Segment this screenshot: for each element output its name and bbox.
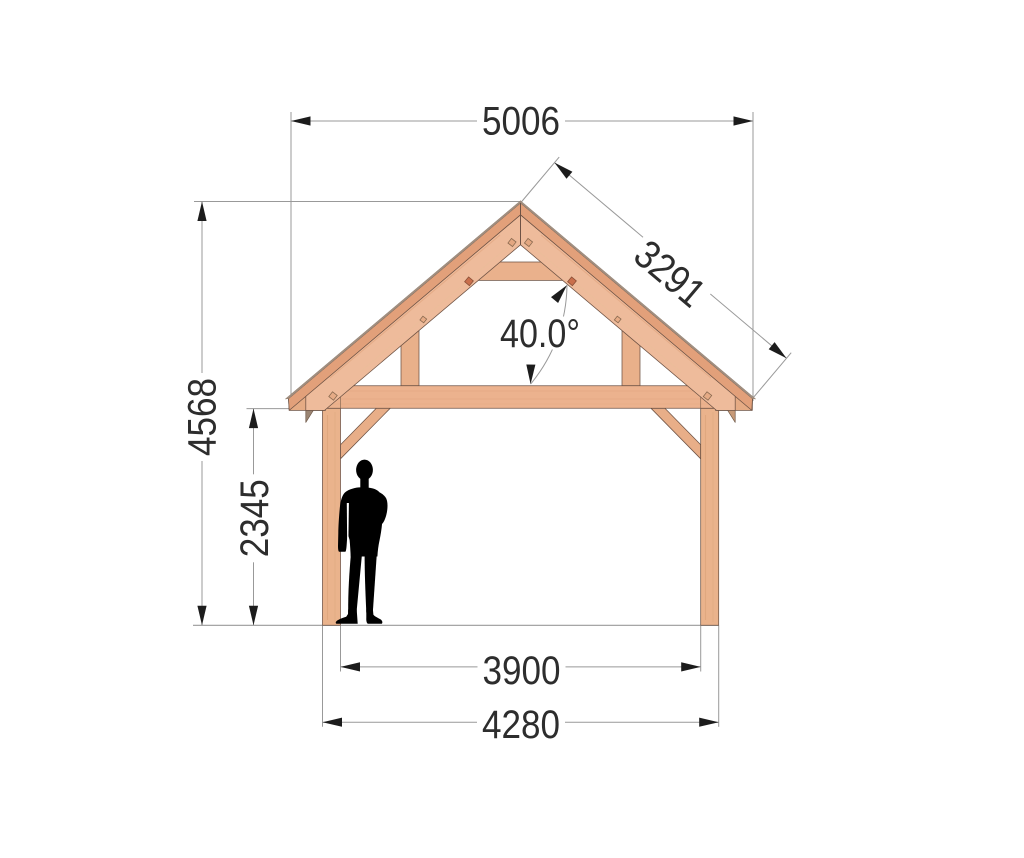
svg-text:5006: 5006	[482, 100, 560, 144]
svg-text:4280: 4280	[482, 703, 560, 747]
svg-text:3900: 3900	[483, 649, 561, 693]
svg-text:40.0°: 40.0°	[500, 312, 580, 356]
svg-text:2345: 2345	[233, 479, 277, 557]
svg-text:4568: 4568	[181, 378, 225, 456]
